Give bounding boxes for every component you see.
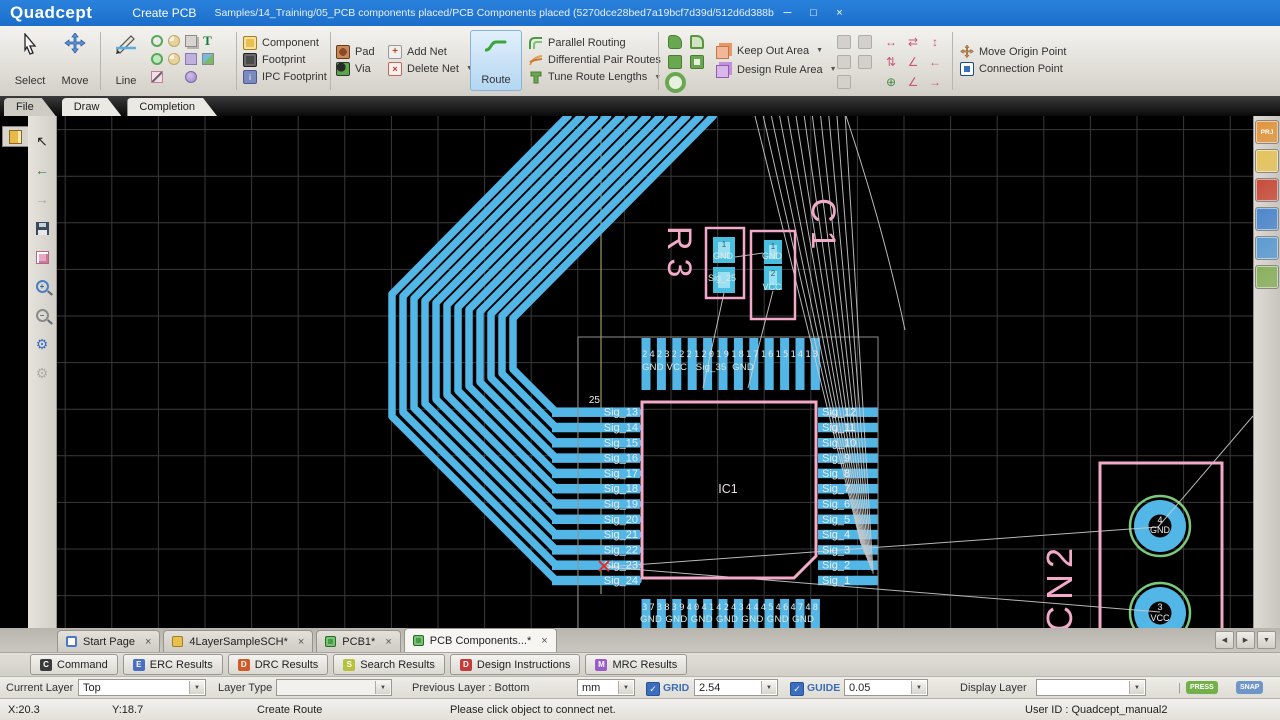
connection-point-icon: [960, 62, 974, 76]
separator: [236, 32, 237, 90]
routing-tools: Parallel Routing Differential Pair Route…: [529, 30, 661, 90]
panel-tab-erc-results[interactable]: EERC Results: [123, 654, 223, 675]
svg-text:2: 2: [771, 269, 776, 278]
doc-tab-scroll: ◀▶▼: [1215, 631, 1280, 652]
svg-text:Sig_5: Sig_5: [822, 514, 850, 526]
dimension-slope-icon[interactable]: ∠: [905, 75, 922, 89]
sch-doc-icon: [172, 636, 183, 647]
close-icon[interactable]: ×: [541, 635, 547, 647]
outline-polygon-area-icon[interactable]: [690, 35, 704, 49]
canvas-right-toolbar: PRJ: [1253, 116, 1280, 628]
settings-button[interactable]: ⚙: [31, 333, 54, 355]
move-origin-icon: [960, 45, 974, 59]
panel-tab-design-instructions[interactable]: DDesign Instructions: [450, 654, 581, 675]
cursor-y-readout: Y:18.7: [112, 699, 143, 720]
move-tool-button[interactable]: Move: [53, 30, 97, 90]
svg-text:R3: R3: [660, 226, 698, 285]
svg-text:1: 1: [722, 240, 727, 249]
net-panel-button[interactable]: [1255, 207, 1279, 231]
svg-text:3: 3: [1157, 602, 1162, 612]
grid-checkbox[interactable]: ✓: [646, 682, 660, 696]
svg-text:Sig_7: Sig_7: [822, 483, 850, 495]
dimension-horizontal-icon[interactable]: ↔: [883, 35, 900, 49]
grid-select[interactable]: 2.54▼: [694, 679, 778, 696]
panel-toggle-button[interactable]: [2, 126, 29, 147]
svg-text:Sig_3: Sig_3: [822, 544, 850, 556]
grid-label: GRID: [663, 677, 689, 699]
keep-out-area-button[interactable]: Keep Out Area▼: [716, 43, 837, 59]
area-rule-tools: Keep Out Area▼ Design Rule Area▼: [716, 30, 837, 90]
chevron-down-icon: ▼: [189, 681, 204, 694]
mrc-results-icon: M: [595, 659, 607, 671]
separator: [952, 32, 953, 90]
doc-tab-label: PCB1*: [342, 636, 375, 648]
svg-text:C1: C1: [804, 198, 842, 257]
svg-text:Sig_25: Sig_25: [708, 273, 736, 283]
svg-text:25: 25: [589, 395, 601, 406]
filled-circle-tool-icon[interactable]: [151, 53, 163, 65]
arc-tool-icon[interactable]: [168, 35, 180, 47]
doc-tab-4layersamplesch[interactable]: 4LayerSampleSCH*×: [163, 630, 313, 652]
title-bar: Quadcept FileEditDrawCreate PCBProjectWi…: [0, 0, 1280, 26]
panel-tab-label: MRC Results: [612, 659, 677, 671]
svg-text:4: 4: [1157, 515, 1162, 525]
dimension-datum-icon[interactable]: ⇄: [905, 35, 922, 49]
layer-type-label: Layer Type: [218, 677, 272, 699]
disabled-tool-icon: [858, 55, 872, 69]
undo-arrow-icon: ←: [35, 163, 49, 177]
badge-snap[interactable]: SNAP: [1236, 681, 1263, 694]
text-tool-icon[interactable]: T: [203, 33, 212, 49]
dimension-offset-icon[interactable]: →: [927, 75, 944, 89]
pad-button[interactable]: Pad: [336, 45, 375, 59]
zoom-out-button[interactable]: −: [31, 304, 54, 326]
svg-text:Sig_1: Sig_1: [822, 575, 850, 587]
chevron-down-icon: ▼: [618, 681, 633, 694]
display-layer-select[interactable]: ▼: [1036, 679, 1146, 696]
separator: [330, 32, 331, 90]
rectangle-tool-icon[interactable]: [185, 53, 197, 65]
svg-text:Sig_12: Sig_12: [822, 407, 856, 419]
ribbon-tab-strip: FileDrawCompletion: [0, 96, 1280, 116]
connection-point-button[interactable]: Connection Point: [960, 62, 1066, 76]
quadcept-window: Quadcept FileEditDrawCreate PCBProjectWi…: [0, 0, 1280, 720]
svg-text:Sig_2: Sig_2: [822, 560, 850, 572]
ipc-footprint-button[interactable]: iIPC Footprint: [243, 70, 327, 84]
display-layer-label: Display Layer: [960, 677, 1027, 699]
dimension-tools: ↔ ⇄ ↕ ⇅ ∠ ← ⊕ ∠ →: [880, 32, 946, 92]
svg-text:VCC: VCC: [1150, 613, 1170, 623]
gear-icon: ⚙: [36, 337, 49, 351]
drc-results-icon: D: [238, 659, 250, 671]
svg-text:GND GND GND GND GND GND GND: GND GND GND GND GND GND GND: [640, 614, 814, 625]
ribbon-toolbar: Select Move Line T Component: [0, 26, 1280, 97]
close-icon[interactable]: ×: [145, 636, 151, 648]
design-rule-area-button[interactable]: Design Rule Area▼: [716, 62, 837, 78]
panel-tab-label: Command: [57, 659, 108, 671]
circle-tool-icon[interactable]: [151, 35, 163, 47]
redo-arrow-icon: →: [35, 192, 49, 206]
filled-rect-area-icon[interactable]: [668, 55, 682, 69]
ellipse-tool-icon[interactable]: [185, 71, 197, 83]
disabled-tool-icon: [837, 75, 851, 89]
project-panel-button[interactable]: PRJ: [1255, 120, 1279, 144]
dimension-angle-icon[interactable]: ∠: [905, 55, 922, 69]
current-layer-label: Current Layer: [6, 677, 73, 699]
svg-text:242322212019181716151413: 242322212019181716151413: [642, 350, 820, 360]
doc-tab-label: 4LayerSampleSCH*: [189, 636, 287, 648]
disabled-tool-icon: [837, 55, 851, 69]
keep-out-area-icon: [716, 46, 729, 59]
canvas-labels: Sig_13Sig_14Sig_15Sig_16Sig_17Sig_18Sig_…: [589, 198, 1171, 628]
ipc-footprint-icon: i: [243, 70, 257, 84]
svg-text:Sig_19: Sig_19: [604, 499, 638, 511]
user-id: User ID : Quadcept_manual2: [1025, 699, 1167, 720]
svg-text:IC1: IC1: [718, 482, 738, 496]
layer-settings-bar: Current Layer Top▼ Layer Type ▼ Previous…: [0, 676, 1280, 699]
dimension-leader-icon[interactable]: ↕: [927, 35, 944, 49]
doc-tab-label: PCB Components...*: [430, 635, 532, 647]
zoom-out-icon: −: [36, 309, 49, 322]
svg-text:Sig_18: Sig_18: [604, 483, 638, 495]
unit-select[interactable]: mm▼: [577, 679, 635, 696]
start-doc-icon: [66, 636, 77, 647]
panel-tab-command[interactable]: CCommand: [30, 654, 118, 675]
svg-text:Sig_11: Sig_11: [822, 422, 855, 434]
circle-area-icon[interactable]: [665, 72, 686, 93]
svg-text:Sig_14: Sig_14: [604, 422, 638, 434]
preview-panel-button[interactable]: [1255, 265, 1279, 289]
svg-text:GND: GND: [762, 251, 783, 261]
disabled-tool-icon: [858, 35, 872, 49]
ribbon-tab-draw[interactable]: Draw: [62, 98, 122, 116]
svg-text:VCC: VCC: [762, 282, 782, 292]
active-command: Create Route: [257, 699, 322, 720]
erc-results-icon: E: [133, 659, 145, 671]
separator: [100, 32, 101, 90]
ribbon-tab-file[interactable]: File: [4, 98, 56, 116]
route-tool-button[interactable]: Route: [470, 30, 522, 91]
dropdown-arrow-icon: ▼: [816, 47, 823, 54]
svg-text:Sig_24: Sig_24: [604, 575, 638, 587]
svg-text:1: 1: [771, 242, 776, 251]
close-button[interactable]: ×: [826, 2, 852, 24]
delete-net-button[interactable]: ×Delete Net▼: [388, 62, 473, 76]
panel-tab-label: DRC Results: [255, 659, 319, 671]
guide-select[interactable]: 0.05▼: [844, 679, 928, 696]
app-logo: Quadcept: [10, 3, 92, 23]
svg-text:Sig_15: Sig_15: [604, 437, 638, 449]
select-tool-button[interactable]: Select: [8, 30, 52, 90]
panel-tab-label: Search Results: [360, 659, 435, 671]
area-shape-tools: [664, 32, 708, 92]
chevron-down-icon: ▼: [911, 681, 926, 694]
undo-button[interactable]: ←: [31, 159, 54, 181]
design-instructions-icon: D: [460, 659, 472, 671]
pcb-editor-canvas[interactable]: Sig_13Sig_14Sig_15Sig_16Sig_17Sig_18Sig_…: [57, 116, 1253, 633]
menu-create-pcb[interactable]: Create PCB: [118, 0, 210, 26]
save-icon: [36, 222, 49, 235]
move-origin-point-button[interactable]: Move Origin Point: [960, 45, 1066, 59]
pad-via-tools: Pad Via: [336, 30, 375, 90]
canvas-left-toolbar: ↖←→+−⚙⚙: [28, 116, 57, 628]
cursor-icon: ↖: [36, 134, 48, 148]
panel-tab-label: ERC Results: [150, 659, 213, 671]
delete-net-icon: ×: [388, 62, 402, 76]
component-tools: Component Footprint iIPC Footprint: [243, 30, 327, 90]
svg-text:Sig_16: Sig_16: [604, 453, 638, 465]
svg-text:GND VCC Sig_35 GND: GND VCC Sig_35 GND: [642, 362, 754, 373]
footprint-button[interactable]: [31, 246, 54, 268]
pcb-doc-icon: [325, 636, 336, 647]
pcb-doc-icon: [413, 635, 424, 646]
cursor-icon: [21, 33, 39, 55]
save-button[interactable]: [31, 217, 54, 239]
tune-route-lengths-icon: [529, 70, 543, 84]
copy-shape-tool-icon[interactable]: [185, 35, 197, 47]
chevron-down-icon: ▼: [761, 681, 776, 694]
parallel-routing-button[interactable]: Parallel Routing: [529, 36, 661, 50]
component-button[interactable]: Component: [243, 36, 327, 50]
rect-hole-area-icon[interactable]: [690, 55, 704, 69]
svg-text:Sig_4: Sig_4: [822, 529, 850, 541]
origin-tools: Move Origin Point Connection Point: [960, 30, 1066, 90]
footprint-icon: [243, 53, 257, 67]
svg-text:Sig_13: Sig_13: [604, 407, 638, 419]
command-icon: C: [40, 659, 52, 671]
pie-tool-icon[interactable]: [168, 53, 180, 65]
svg-text:Sig_8: Sig_8: [822, 468, 850, 480]
differential-pair-routes-button[interactable]: Differential Pair Routes: [529, 53, 661, 67]
scroll-left-icon[interactable]: ◀: [1215, 631, 1234, 649]
document-tab-bar: Start Page×4LayerSampleSCH*×PCB1*×PCB Co…: [0, 628, 1280, 652]
minimize-button[interactable]: ─: [774, 2, 800, 24]
library-panel-icon: [9, 130, 22, 144]
close-icon[interactable]: ×: [385, 636, 391, 648]
svg-text:Sig_21: Sig_21: [604, 529, 638, 541]
footprint-button[interactable]: Footprint: [243, 53, 327, 67]
redo-button[interactable]: →: [31, 188, 54, 210]
status-bar: X:20.3 Y:18.7 Create Route Please click …: [0, 698, 1280, 720]
chevron-down-icon: ▼: [1129, 681, 1144, 694]
status-message: Please click object to connect net.: [450, 699, 616, 720]
chevron-down-icon: ▼: [375, 681, 390, 694]
maximize-button[interactable]: □: [800, 2, 826, 24]
pcb-drawing[interactable]: Sig_13Sig_14Sig_15Sig_16Sig_17Sig_18Sig_…: [57, 116, 1253, 628]
svg-text:Sig_20: Sig_20: [604, 514, 638, 526]
line-tool-button[interactable]: Line: [104, 30, 148, 90]
zoom-in-icon: +: [36, 280, 49, 293]
doc-tab-start-page[interactable]: Start Page×: [57, 630, 160, 652]
settings-alt-button[interactable]: ⚙: [31, 362, 54, 384]
route-icon: [485, 39, 507, 53]
panel-tab-mrc-results[interactable]: MMRC Results: [585, 654, 687, 675]
disabled-tools: [833, 32, 875, 92]
doc-tab-pcb-components[interactable]: PCB Components...*×: [404, 628, 557, 652]
svg-text:GND: GND: [713, 251, 734, 261]
search-results-icon: S: [343, 659, 355, 671]
scroll-right-icon[interactable]: ▶: [1236, 631, 1255, 649]
via-icon: [336, 62, 350, 76]
tune-route-lengths-button[interactable]: Tune Route Lengths▼: [529, 70, 661, 84]
dimension-radius-icon[interactable]: ←: [927, 55, 944, 69]
filled-polygon-area-icon[interactable]: [668, 35, 682, 49]
zoom-in-button[interactable]: +: [31, 275, 54, 297]
result-panel-tab-bar: CCommandEERC ResultsDDRC ResultsSSearch …: [0, 652, 1280, 676]
svg-text:CN2: CN2: [1039, 542, 1080, 628]
component-panel-button[interactable]: [1255, 149, 1279, 173]
dimension-vertical-icon[interactable]: ⇅: [883, 55, 900, 69]
parallel-routing-icon: [529, 36, 543, 50]
document-path: Samples/14_Training/05_PCB components pl…: [214, 7, 774, 19]
svg-text:Sig_9: Sig_9: [822, 453, 850, 465]
select-button[interactable]: ↖: [31, 130, 54, 152]
guide-label: GUIDE: [807, 677, 840, 699]
doc-tab-pcb1[interactable]: PCB1*×: [316, 630, 400, 652]
pencil-icon: [114, 33, 138, 55]
add-net-icon: +: [388, 45, 402, 59]
svg-text:Sig_22: Sig_22: [604, 544, 638, 556]
svg-text:373839404142434445464748: 373839404142434445464748: [642, 603, 820, 613]
add-net-button[interactable]: +Add Net: [388, 45, 473, 59]
footprint-icon: [36, 251, 49, 264]
layer-type-select[interactable]: ▼: [276, 679, 392, 696]
net-tools: +Add Net ×Delete Net▼: [388, 30, 473, 90]
current-layer-select[interactable]: Top▼: [78, 679, 206, 696]
image-tool-icon[interactable]: [202, 53, 214, 65]
separator: |: [1178, 677, 1181, 699]
close-icon[interactable]: ×: [298, 636, 304, 648]
ribbon-tab-completion[interactable]: Completion: [127, 98, 217, 116]
disabled-tool-icon: [837, 35, 851, 49]
guide-checkbox[interactable]: ✓: [790, 682, 804, 696]
svg-text:Sig_17: Sig_17: [604, 468, 638, 480]
separator: [658, 32, 659, 90]
previous-layer-label: Previous Layer : Bottom: [412, 677, 529, 699]
svg-text:Sig_6: Sig_6: [822, 499, 850, 511]
cursor-x-readout: X:20.3: [8, 699, 40, 720]
move-icon: [64, 33, 86, 55]
hatch-tool-icon[interactable]: [151, 71, 163, 83]
panel-tab-drc-results[interactable]: DDRC Results: [228, 654, 329, 675]
svg-text:GND: GND: [1150, 525, 1171, 535]
tab-list-icon[interactable]: ▼: [1257, 631, 1276, 649]
panel-tab-label: Design Instructions: [477, 659, 571, 671]
badge-press[interactable]: PRESS: [1186, 681, 1218, 694]
via-button[interactable]: Via: [336, 62, 375, 76]
parts-panel-button[interactable]: [1255, 236, 1279, 260]
doc-tab-label: Start Page: [83, 636, 135, 648]
component-icon: [243, 36, 257, 50]
dimension-diameter-icon[interactable]: ⊕: [883, 75, 900, 89]
pad-icon: [336, 45, 350, 59]
svg-text:Sig_10: Sig_10: [822, 437, 856, 449]
gear-disabled-icon: ⚙: [36, 366, 49, 380]
panel-tab-search-results[interactable]: SSearch Results: [333, 654, 445, 675]
draw-shape-tools: T: [148, 32, 216, 86]
layer-panel-button[interactable]: [1255, 178, 1279, 202]
design-rule-area-icon: [716, 65, 729, 78]
differential-pair-icon: [529, 53, 543, 67]
